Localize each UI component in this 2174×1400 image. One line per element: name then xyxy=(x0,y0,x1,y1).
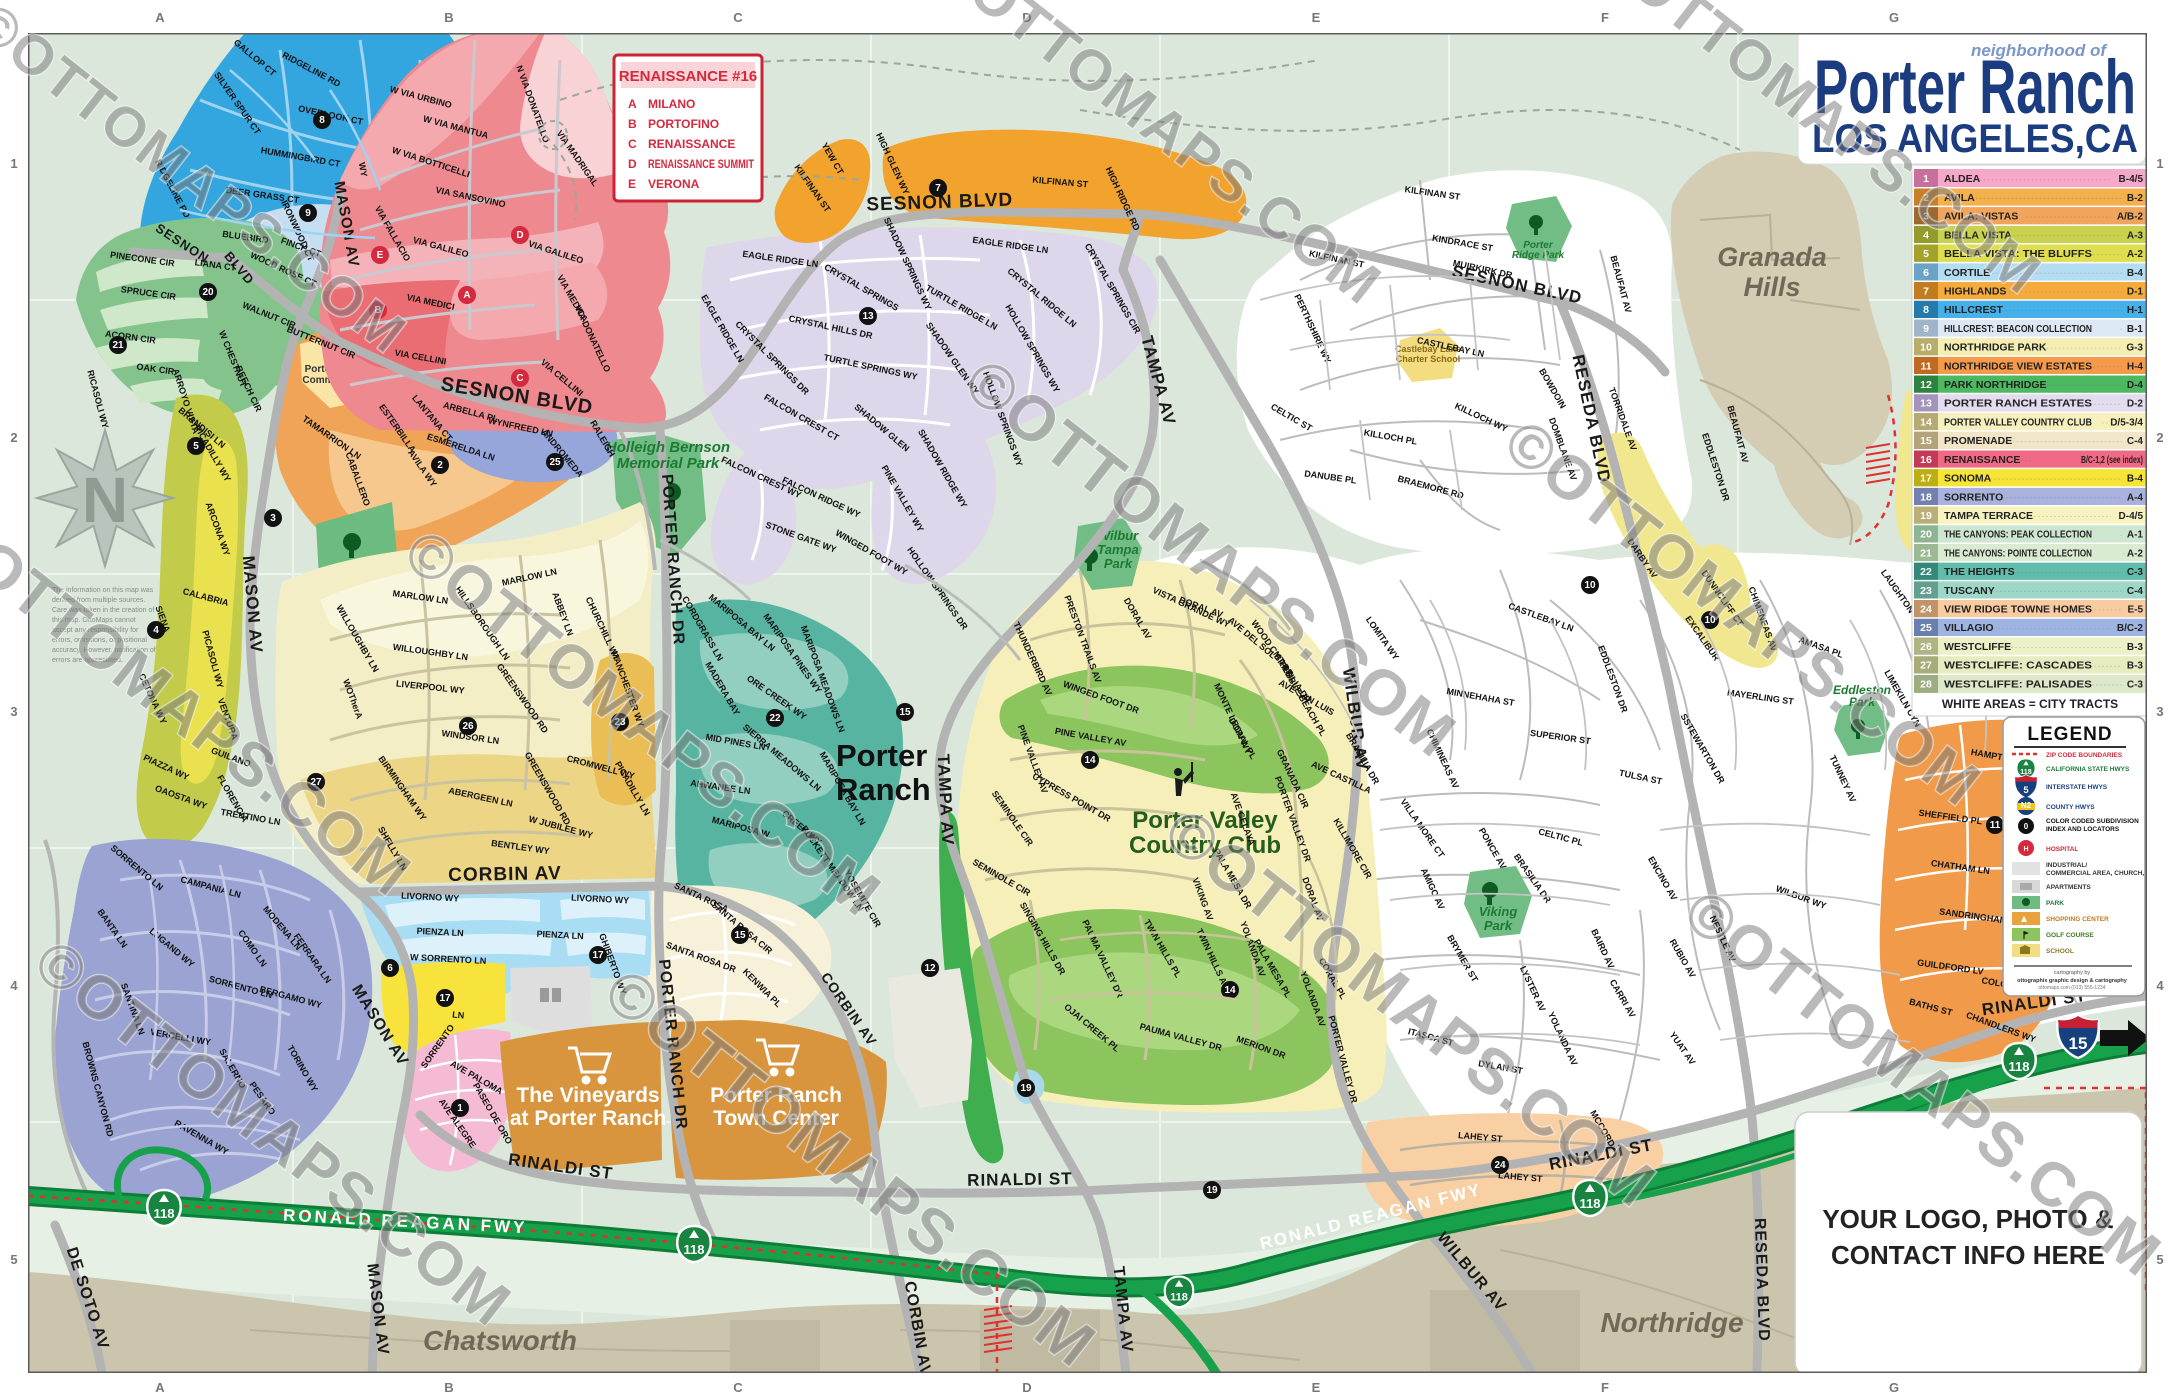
svg-text:PORTER RANCH ESTATES: PORTER RANCH ESTATES xyxy=(1944,398,2092,410)
svg-text:LN: LN xyxy=(452,1010,465,1021)
svg-text:7: 7 xyxy=(935,183,941,194)
svg-text:C-4: C-4 xyxy=(2127,586,2144,597)
svg-text:GOLF COURSE: GOLF COURSE xyxy=(2046,932,2094,939)
svg-text:THE HEIGHTS: THE HEIGHTS xyxy=(1944,566,2015,578)
svg-text:23: 23 xyxy=(1920,585,1932,597)
svg-text:B/C-2: B/C-2 xyxy=(2117,623,2144,634)
svg-text:24: 24 xyxy=(1494,1160,1506,1171)
svg-text:6: 6 xyxy=(1923,267,1929,279)
svg-text:D-4: D-4 xyxy=(2127,380,2144,391)
svg-text:4: 4 xyxy=(153,625,159,636)
svg-text:E: E xyxy=(628,177,636,191)
svg-text:H: H xyxy=(2023,846,2028,853)
svg-text:2: 2 xyxy=(437,460,443,471)
svg-text:Granada: Granada xyxy=(1717,242,1827,272)
svg-text:0: 0 xyxy=(2024,822,2029,831)
svg-text:RENAISSANCE #16: RENAISSANCE #16 xyxy=(619,68,757,85)
svg-text:HOSPITAL: HOSPITAL xyxy=(2046,846,2078,853)
svg-text:8: 8 xyxy=(1923,304,1929,316)
svg-text:ZIP CODE BOUNDARIES: ZIP CODE BOUNDARIES xyxy=(2046,752,2123,759)
svg-text:COMMERCIAL AREA, CHURCH, PS: COMMERCIAL AREA, CHURCH, PS xyxy=(2046,870,2155,877)
svg-text:The Vineyards: The Vineyards xyxy=(516,1084,659,1107)
svg-text:VILLAGIO: VILLAGIO xyxy=(1944,622,1994,634)
svg-text:RENAISSANCE: RENAISSANCE xyxy=(648,137,735,151)
svg-text:WESTCLIFFE: CASCADES: WESTCLIFFE: CASCADES xyxy=(1944,660,2092,672)
svg-text:C-3: C-3 xyxy=(2127,679,2144,690)
svg-text:B: B xyxy=(444,1380,453,1395)
svg-text:G: G xyxy=(1889,10,1899,25)
svg-text:15: 15 xyxy=(1920,435,1932,447)
svg-text:6: 6 xyxy=(387,963,393,974)
svg-text:16: 16 xyxy=(1920,454,1932,466)
svg-text:C-4: C-4 xyxy=(2127,436,2144,447)
svg-text:PORTER VALLEY COUNTRY CLUB: PORTER VALLEY COUNTRY CLUB xyxy=(1944,416,2092,428)
svg-text:WESTCLIFFE: PALISADES: WESTCLIFFE: PALISADES xyxy=(1944,678,2092,690)
svg-text:17: 17 xyxy=(1920,473,1932,485)
svg-text:Park: Park xyxy=(1484,918,1513,933)
svg-text:11: 11 xyxy=(1920,360,1931,372)
svg-text:9: 9 xyxy=(305,208,311,219)
svg-text:N: N xyxy=(82,464,128,536)
svg-text:12: 12 xyxy=(1920,379,1932,391)
svg-text:SHOPPING CENTER: SHOPPING CENTER xyxy=(2046,916,2109,923)
svg-text:C: C xyxy=(516,373,523,384)
svg-text:14: 14 xyxy=(1084,755,1096,766)
svg-text:17: 17 xyxy=(439,993,451,1004)
svg-text:Ridge Park: Ridge Park xyxy=(1512,250,1565,261)
svg-text:D-1: D-1 xyxy=(2127,287,2144,298)
svg-text:C: C xyxy=(733,10,743,25)
svg-text:A-2: A-2 xyxy=(2127,249,2144,260)
svg-text:Holleigh Bernson: Holleigh Bernson xyxy=(606,439,730,456)
svg-text:A: A xyxy=(628,97,637,111)
svg-text:COLOR CODED SUBDIVISION: COLOR CODED SUBDIVISION xyxy=(2046,818,2139,825)
svg-text:1: 1 xyxy=(2156,156,2163,171)
svg-text:C: C xyxy=(733,1380,743,1395)
svg-text:14: 14 xyxy=(1224,985,1236,996)
svg-text:Park: Park xyxy=(1104,556,1133,571)
svg-text:2: 2 xyxy=(10,430,17,445)
svg-text:N2: N2 xyxy=(2021,801,2032,810)
svg-text:A-3: A-3 xyxy=(2127,230,2144,241)
svg-text:1: 1 xyxy=(10,156,17,171)
svg-text:A/B-2: A/B-2 xyxy=(2117,212,2144,223)
svg-text:D-2: D-2 xyxy=(2127,399,2144,410)
svg-text:17: 17 xyxy=(592,950,604,961)
svg-text:19: 19 xyxy=(1206,1185,1218,1196)
svg-text:NORTHRIDGE PARK: NORTHRIDGE PARK xyxy=(1944,342,2047,354)
svg-text:RINALDI ST: RINALDI ST xyxy=(967,1169,1073,1190)
svg-text:5: 5 xyxy=(10,1252,17,1267)
svg-text:Viking: Viking xyxy=(1479,904,1518,919)
svg-text:9: 9 xyxy=(1923,323,1929,335)
svg-text:1: 1 xyxy=(457,1103,463,1114)
svg-text:A-4: A-4 xyxy=(2127,492,2144,503)
svg-text:B: B xyxy=(628,117,637,131)
svg-text:PORTOFINO: PORTOFINO xyxy=(648,117,719,131)
svg-text:15: 15 xyxy=(899,707,911,718)
svg-text:HILLCREST: BEACON COLLECTION: HILLCREST: BEACON COLLECTION xyxy=(1944,323,2092,335)
svg-text:118: 118 xyxy=(1170,1291,1188,1303)
svg-text:28: 28 xyxy=(1920,678,1932,690)
svg-text:SONOMA: SONOMA xyxy=(1944,473,1992,485)
svg-text:VERONA: VERONA xyxy=(648,177,700,191)
svg-text:Tampa: Tampa xyxy=(1097,542,1138,557)
svg-text:H-4: H-4 xyxy=(2127,361,2144,372)
svg-text:THE CANYONS: PEAK COLLECTION: THE CANYONS: PEAK COLLECTION xyxy=(1944,529,2092,541)
svg-text:13: 13 xyxy=(1920,398,1932,410)
svg-text:15: 15 xyxy=(2069,1034,2088,1053)
svg-text:APARTMENTS: APARTMENTS xyxy=(2046,884,2091,891)
svg-text:21: 21 xyxy=(1920,547,1932,559)
svg-text:D: D xyxy=(628,157,637,171)
svg-text:13: 13 xyxy=(862,311,874,322)
svg-text:3: 3 xyxy=(10,704,17,719)
svg-text:TAMPA TERRACE: TAMPA TERRACE xyxy=(1944,510,2033,522)
svg-text:COUNTY HWYS: COUNTY HWYS xyxy=(2046,804,2095,811)
svg-text:cartography by: cartography by xyxy=(2054,970,2091,976)
svg-text:A-1: A-1 xyxy=(2127,530,2144,541)
svg-text:F: F xyxy=(1601,10,1609,25)
svg-text:B-3: B-3 xyxy=(2127,642,2144,653)
svg-text:7: 7 xyxy=(1923,286,1929,298)
svg-text:D: D xyxy=(516,230,523,241)
svg-text:3: 3 xyxy=(270,513,276,524)
svg-text:21: 21 xyxy=(112,340,124,351)
svg-text:F: F xyxy=(1601,1380,1609,1395)
svg-text:D: D xyxy=(1022,1380,1031,1395)
svg-text:RENAISSANCE: RENAISSANCE xyxy=(1944,454,2020,466)
svg-text:G: G xyxy=(1889,1380,1899,1395)
svg-text:CALIFORNIA STATE HWYS: CALIFORNIA STATE HWYS xyxy=(2046,766,2130,773)
svg-text:26: 26 xyxy=(1920,641,1932,653)
svg-text:INDUSTRIAL/: INDUSTRIAL/ xyxy=(2046,862,2087,869)
svg-text:C: C xyxy=(628,137,637,151)
svg-text:E: E xyxy=(1312,1380,1321,1395)
svg-text:WESTCLIFFE: WESTCLIFFE xyxy=(1944,641,2011,653)
svg-text:27: 27 xyxy=(1920,660,1932,672)
svg-text:B-3: B-3 xyxy=(2127,661,2144,672)
svg-text:MILANO: MILANO xyxy=(648,97,695,111)
svg-text:E-5: E-5 xyxy=(2127,605,2143,616)
svg-text:118: 118 xyxy=(2009,1059,2030,1074)
svg-text:118: 118 xyxy=(154,1206,175,1221)
svg-text:E: E xyxy=(1312,10,1321,25)
svg-text:C-3: C-3 xyxy=(2127,567,2144,578)
svg-text:E: E xyxy=(377,250,384,261)
svg-text:11: 11 xyxy=(1990,820,2001,831)
svg-text:D-4/5: D-4/5 xyxy=(2119,511,2144,522)
svg-text:5: 5 xyxy=(193,441,199,452)
svg-text:LEGEND: LEGEND xyxy=(2027,724,2112,745)
svg-text:12: 12 xyxy=(924,963,936,974)
svg-text:WHITE AREAS = CITY TRACTS: WHITE AREAS = CITY TRACTS xyxy=(1942,697,2118,711)
svg-text:Porter: Porter xyxy=(836,738,927,773)
svg-text:PARK: PARK xyxy=(2046,900,2064,907)
svg-text:10: 10 xyxy=(1584,580,1596,591)
svg-text:Chatsworth: Chatsworth xyxy=(423,1325,577,1356)
svg-text:B-2: B-2 xyxy=(2127,193,2144,204)
svg-text:SCHOOL: SCHOOL xyxy=(2046,948,2074,955)
svg-text:Memorial Park: Memorial Park xyxy=(617,455,720,472)
svg-text:D/5-3/4: D/5-3/4 xyxy=(2110,417,2143,428)
svg-text:B-4: B-4 xyxy=(2127,474,2144,485)
svg-text:8: 8 xyxy=(319,115,325,126)
svg-text:A: A xyxy=(155,1380,165,1395)
svg-text:26: 26 xyxy=(462,721,474,732)
svg-text:B: B xyxy=(444,10,453,25)
svg-text:25: 25 xyxy=(549,457,561,468)
svg-text:VIEW RIDGE TOWNE HOMES: VIEW RIDGE TOWNE HOMES xyxy=(1944,604,2092,616)
svg-text:A-2: A-2 xyxy=(2127,548,2144,559)
svg-text:Charter School: Charter School xyxy=(1396,354,1461,364)
svg-text:H-1: H-1 xyxy=(2127,305,2144,316)
svg-text:CONTACT INFO HERE: CONTACT INFO HERE xyxy=(1831,1240,2105,1270)
svg-text:5: 5 xyxy=(1923,248,1929,260)
svg-text:PARK NORTHRIDGE: PARK NORTHRIDGE xyxy=(1944,379,2046,391)
svg-text:20: 20 xyxy=(1920,529,1932,541)
svg-text:2: 2 xyxy=(2156,430,2163,445)
svg-text:25: 25 xyxy=(1920,622,1932,634)
svg-text:18: 18 xyxy=(1920,491,1932,503)
svg-text:RENAISSANCE SUMMIT: RENAISSANCE SUMMIT xyxy=(648,157,755,171)
svg-text:14: 14 xyxy=(1920,416,1932,428)
svg-text:4: 4 xyxy=(2156,978,2164,993)
svg-text:A: A xyxy=(463,290,470,301)
svg-text:INDEX AND LOCATORS: INDEX AND LOCATORS xyxy=(2046,826,2120,833)
svg-text:B/C-1,2 (see index): B/C-1,2 (see index) xyxy=(2081,455,2143,466)
svg-text:A: A xyxy=(155,10,165,25)
svg-text:ottomaps.com (013) 555-1234: ottomaps.com (013) 555-1234 xyxy=(2039,985,2106,991)
svg-text:24: 24 xyxy=(1920,604,1932,616)
svg-text:NORTHRIDGE VIEW ESTATES: NORTHRIDGE VIEW ESTATES xyxy=(1944,360,2092,372)
svg-text:118: 118 xyxy=(684,1242,705,1257)
svg-text:Northridge: Northridge xyxy=(1600,1307,1743,1338)
svg-text:22: 22 xyxy=(1920,566,1932,578)
svg-text:20: 20 xyxy=(202,287,214,298)
svg-text:3: 3 xyxy=(2156,704,2163,719)
svg-text:ottographix graphic design & c: ottographix graphic design & cartography xyxy=(2017,978,2128,984)
svg-text:22: 22 xyxy=(769,713,781,724)
svg-text:15: 15 xyxy=(734,930,746,941)
svg-text:5: 5 xyxy=(2023,785,2028,795)
svg-text:CORBIN AV: CORBIN AV xyxy=(448,863,562,886)
svg-text:at Porter Ranch: at Porter Ranch xyxy=(510,1107,666,1130)
svg-text:B-1: B-1 xyxy=(2127,324,2144,335)
svg-text:INTERSTATE HWYS: INTERSTATE HWYS xyxy=(2046,784,2108,791)
svg-text:19: 19 xyxy=(1020,1083,1032,1094)
svg-text:TUSCANY: TUSCANY xyxy=(1944,585,1995,597)
svg-text:G-3: G-3 xyxy=(2126,343,2143,354)
svg-text:HILLCREST: HILLCREST xyxy=(1944,304,2004,316)
svg-text:10: 10 xyxy=(1920,342,1932,354)
svg-text:4: 4 xyxy=(10,978,18,993)
svg-text:19: 19 xyxy=(1920,510,1932,522)
svg-text:B-4/5: B-4/5 xyxy=(2119,174,2144,185)
svg-text:THE CANYONS: POINTE COLLECTION: THE CANYONS: POINTE COLLECTION xyxy=(1944,547,2092,559)
svg-text:B-4: B-4 xyxy=(2127,268,2144,279)
svg-text:Hills: Hills xyxy=(1743,272,1800,302)
